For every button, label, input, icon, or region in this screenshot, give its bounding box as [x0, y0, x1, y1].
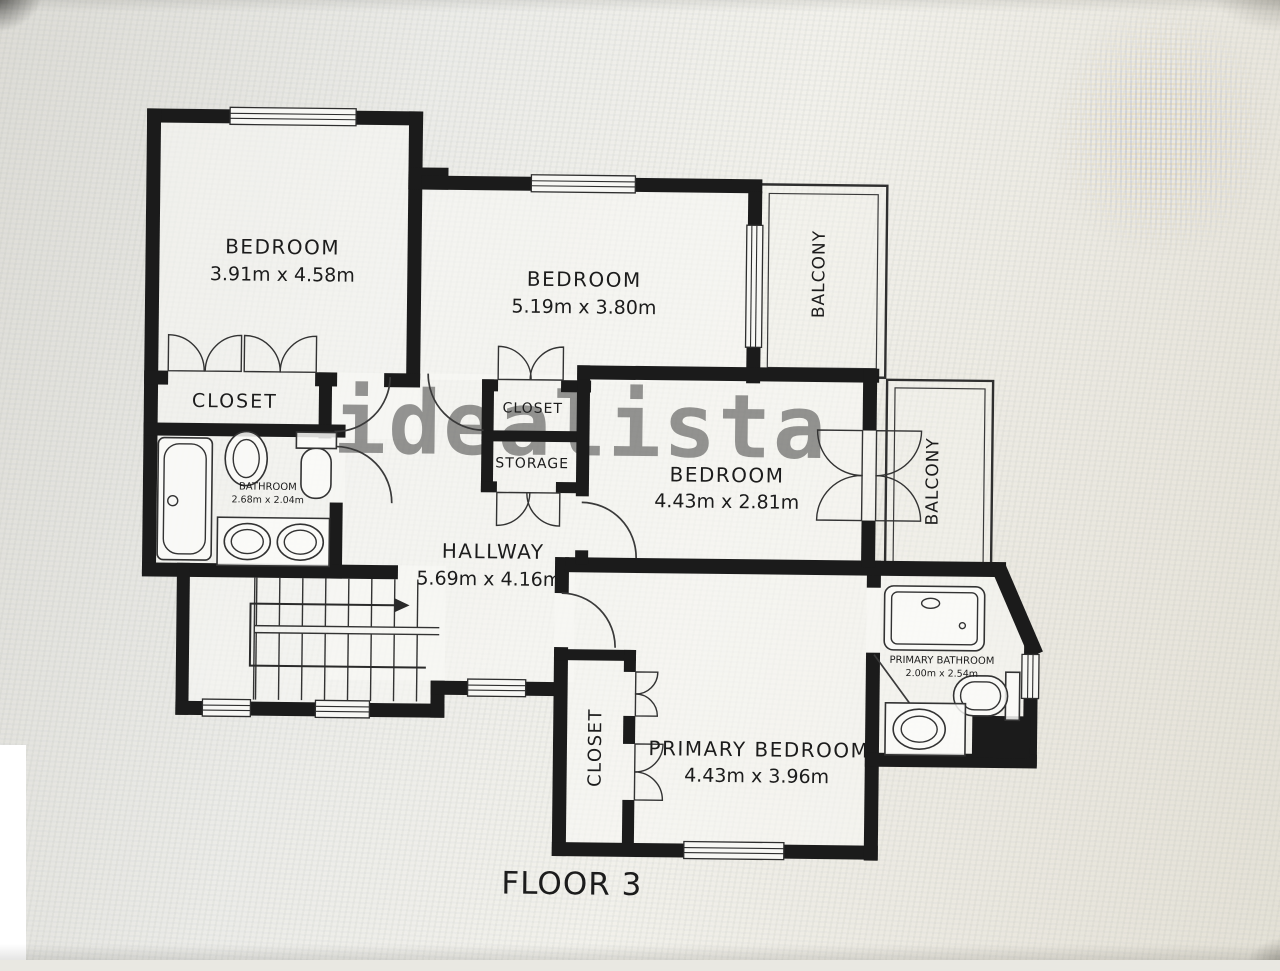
bidet-tank: [296, 432, 336, 448]
room-label-bedroom2-name: BEDROOM: [527, 267, 642, 292]
room-label-balcony-right: BALCONY: [923, 437, 944, 525]
window-hallway: [468, 679, 526, 697]
room-label-bathroom-name: BATHROOM: [239, 481, 297, 493]
room-label-hallway-dims: 5.69m x 4.16m: [416, 567, 561, 591]
balcony-slider-door: [746, 225, 763, 347]
window-primary-bathroom: [1022, 654, 1039, 698]
room-label-closet-mid: CLOSET: [503, 400, 564, 417]
room-label-balcony-top: BALCONY: [809, 230, 830, 318]
room-label-closet-main: CLOSET: [192, 390, 278, 413]
room-label-bedroom1-name: BEDROOM: [225, 234, 340, 259]
room-label-bathroom-dims: 2.68m x 2.04m: [231, 494, 304, 506]
room-label-storage: STORAGE: [495, 455, 569, 472]
window-bedroom1: [230, 107, 356, 125]
room-label-hallway-name: HALLWAY: [442, 539, 545, 564]
floor-plan: idealista: [0, 0, 1280, 967]
room-label-bedroom1-dims: 3.91m x 4.58m: [210, 263, 355, 287]
room-label-bedroom3-dims: 4.43m x 2.81m: [654, 490, 799, 514]
room-label-primary-closet: CLOSET: [585, 708, 607, 787]
room-label-primary-bathroom-name: PRIMARY BATHROOM: [889, 655, 994, 667]
bidet: [301, 448, 332, 498]
window-stairs-1: [202, 699, 250, 717]
shower-tub: [884, 586, 985, 651]
room-label-primary-bathroom-dims: 2.00m x 2.54m: [906, 668, 979, 680]
floor-plan-drawing: idealista: [0, 0, 1280, 967]
room-label-primary-bedroom-name: PRIMARY BEDROOM: [648, 736, 869, 763]
room-label-bedroom2-dims: 5.19m x 3.80m: [511, 296, 656, 320]
floor-plan-photo: idealista: [0, 0, 1280, 960]
window-primary-bedroom: [684, 842, 784, 860]
room-label-primary-bedroom-dims: 4.43m x 3.96m: [684, 765, 829, 789]
bathtub: [157, 438, 212, 561]
room-label-bedroom3-name: BEDROOM: [669, 462, 784, 487]
floor-caption: FLOOR 3: [501, 865, 642, 903]
window-bedroom2: [531, 175, 635, 193]
window-stairs-2: [315, 700, 369, 718]
